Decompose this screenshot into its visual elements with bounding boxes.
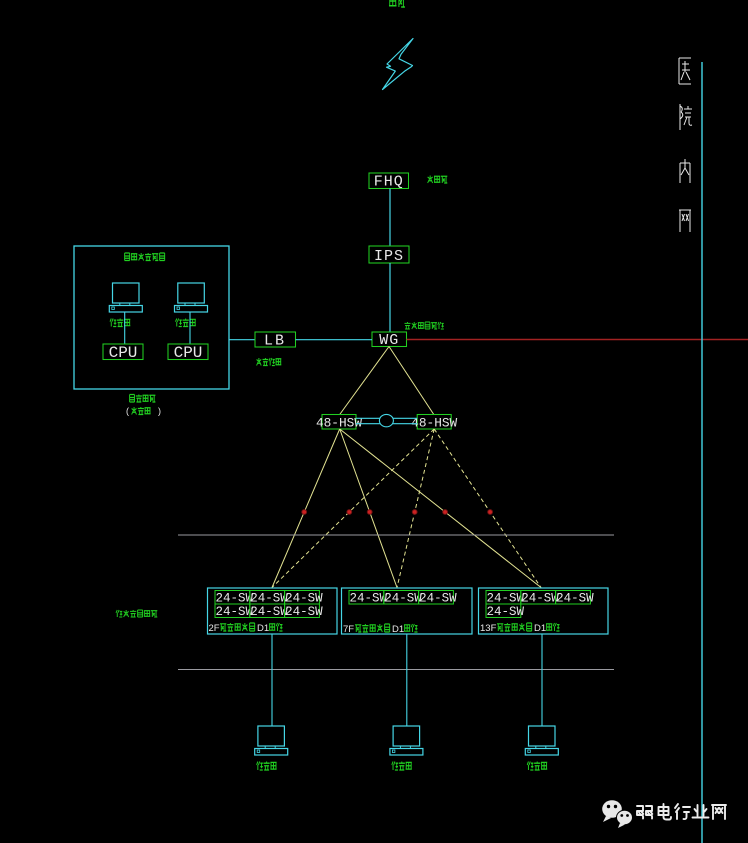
svg-text:24-SW: 24-SW [216,605,254,619]
svg-text:CPU: CPU [109,344,138,362]
svg-text:D1: D1 [392,624,404,635]
svg-text:24-SW: 24-SW [487,605,525,619]
svg-text:24-SW: 24-SW [350,592,388,606]
svg-text:48-HSW: 48-HSW [316,415,362,430]
svg-text:D1: D1 [534,623,546,634]
svg-text:FHQ: FHQ [374,174,404,191]
svg-text:24-SW: 24-SW [250,605,288,619]
svg-text:24-SW: 24-SW [285,592,323,606]
svg-text:IPS: IPS [374,248,404,265]
svg-text:): ) [158,406,161,416]
svg-text:48-HSW: 48-HSW [411,415,457,430]
svg-text:7F: 7F [343,624,354,635]
svg-text:13F: 13F [480,623,497,634]
svg-text:24-SW: 24-SW [384,592,422,606]
svg-text:24-SW: 24-SW [556,592,594,606]
svg-text:2F: 2F [209,623,220,634]
svg-text:24-SW: 24-SW [521,592,559,606]
svg-text:D1: D1 [257,623,269,634]
svg-text:24-SW: 24-SW [419,592,457,606]
svg-text:24-SW: 24-SW [285,605,323,619]
svg-text:24-SW: 24-SW [216,592,254,606]
svg-text:24-SW: 24-SW [487,592,525,606]
svg-text:CPU: CPU [174,344,203,362]
svg-text:LB: LB [264,332,286,349]
svg-text:24-SW: 24-SW [250,592,288,606]
svg-text:(: ( [126,406,129,416]
